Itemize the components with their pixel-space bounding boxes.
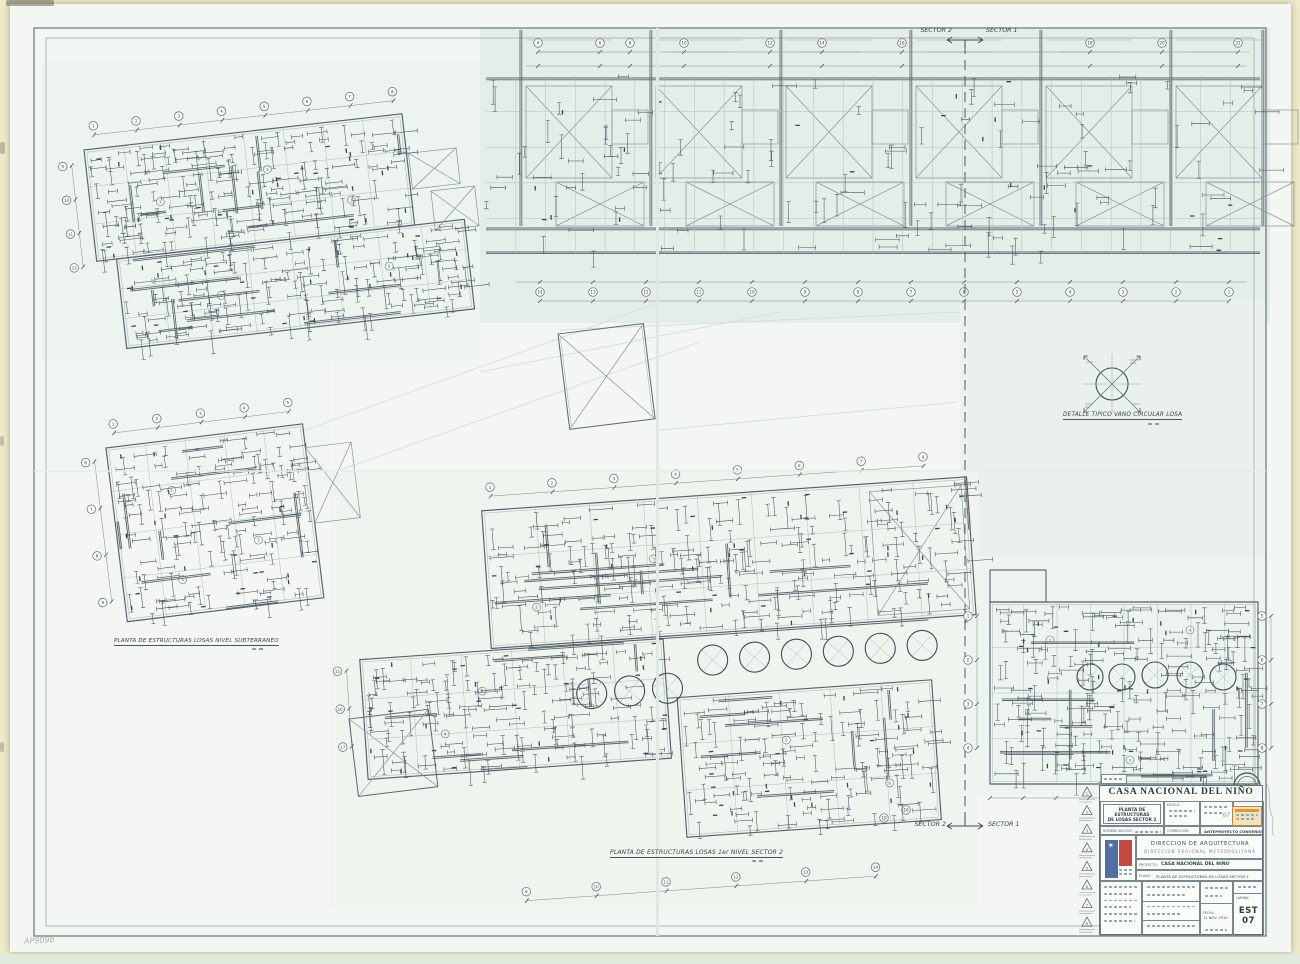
svg-text:4: 4 — [1069, 290, 1072, 295]
svg-text:1: 1 — [159, 199, 163, 204]
date-value: 11 NOV. 2010 — [1203, 916, 1228, 920]
svg-text:1: 1 — [1086, 792, 1088, 796]
svg-text:10: 10 — [749, 290, 755, 295]
pencil-mark: 67 — [1222, 812, 1230, 819]
svg-text:2: 2 — [967, 658, 970, 663]
caption-scale-note — [752, 860, 766, 862]
plan-primer-nivel: 1234567891011121314151617321564 — [321, 448, 1014, 915]
scale-cell: ESCALA — [1164, 801, 1200, 826]
agency-cell: DIRECCION DE ARQUITECTURA DIRECCION REGI… — [1136, 835, 1264, 859]
stair-block-center — [558, 324, 655, 430]
sector-label-top-right: SECTOR 1 — [986, 27, 1018, 34]
svg-text:10: 10 — [593, 884, 599, 889]
svg-text:12: 12 — [643, 290, 649, 295]
svg-text:7: 7 — [1261, 702, 1264, 707]
svg-text:8: 8 — [857, 290, 860, 295]
svg-text:11: 11 — [663, 879, 669, 884]
svg-text:4: 4 — [1189, 627, 1192, 632]
svg-text:20: 20 — [1159, 41, 1165, 46]
svg-text:6: 6 — [1086, 885, 1088, 889]
svg-text:17: 17 — [340, 744, 346, 749]
sheet-number: EST 07 — [1234, 906, 1263, 926]
correction-cell: CORRECCION — [1164, 826, 1200, 835]
sheet-label: LAMINA: — [1236, 896, 1249, 900]
svg-text:3: 3 — [257, 537, 261, 542]
agency-name: DIRECCION DE ARQUITECTURA — [1137, 841, 1263, 847]
svg-text:13: 13 — [803, 869, 809, 874]
svg-text:5: 5 — [1261, 614, 1264, 619]
svg-text:6: 6 — [599, 41, 602, 46]
svg-text:1: 1 — [1228, 290, 1231, 295]
svg-text:5: 5 — [1016, 290, 1019, 295]
svg-text:4: 4 — [1086, 848, 1088, 852]
svg-text:8: 8 — [629, 41, 632, 46]
plan-subterraneo: 123456789234 — [77, 391, 372, 638]
edge-smudge — [6, 0, 54, 6]
sector-label-bottom-left: SECTOR 2 — [902, 821, 946, 828]
sector-label-bottom-right: SECTOR 1 — [988, 821, 1020, 828]
svg-text:3: 3 — [1129, 757, 1132, 762]
svg-text:22: 22 — [1235, 41, 1241, 46]
svg-text:4: 4 — [537, 41, 540, 46]
scale-label: ESCALA — [1167, 803, 1179, 807]
svg-text:15: 15 — [335, 669, 341, 674]
plan-label: PLANO: — [1139, 874, 1151, 878]
project-row: PROYECTO: CASA NACIONAL DEL NIÑO — [1136, 859, 1264, 870]
svg-text:11: 11 — [696, 290, 702, 295]
caption-detalle-vano: DETALLE TIPICO VANO CIRCULAR LOSA — [1063, 412, 1182, 420]
project-value: CASA NACIONAL DEL NIÑO — [1161, 862, 1229, 867]
plan-top-left: 12345678910111212345 — [54, 79, 494, 372]
svg-text:8: 8 — [1261, 746, 1264, 751]
svg-text:6: 6 — [1261, 658, 1264, 663]
sheet-number-cell: LAMINA: EST 07 — [1233, 881, 1264, 936]
logo-cell: ✶ — [1100, 835, 1136, 881]
logo-star-icon: ✶ — [1108, 841, 1115, 850]
revision-triangle-column: 12345678 — [1079, 787, 1095, 932]
fields-colB — [1142, 881, 1200, 936]
svg-text:3: 3 — [967, 702, 970, 707]
svg-text:10: 10 — [881, 816, 887, 821]
detail-vano-circular — [1082, 354, 1142, 414]
edge-smudge — [0, 436, 4, 446]
misc-cell: 67 — [1200, 801, 1233, 826]
file-label: NOMBRE ARCHIVO — [1103, 829, 1133, 833]
plan-bottom-right: 12345678143 — [964, 570, 1273, 800]
pencil-squiggle — [1266, 782, 1274, 836]
svg-text:14: 14 — [537, 290, 543, 295]
plan-value: PLANTA DE ESTRUCTURAS DE LOSAS SECTOR 2 — [1156, 874, 1249, 879]
svg-text:7: 7 — [910, 290, 913, 295]
svg-text:3: 3 — [652, 556, 655, 561]
logo-red-field — [1119, 840, 1132, 866]
svg-text:1: 1 — [967, 614, 970, 619]
svg-text:9: 9 — [804, 290, 807, 295]
mop-logo: ✶ — [1105, 840, 1132, 878]
svg-text:14: 14 — [873, 864, 879, 869]
ghost-underlay — [300, 302, 960, 470]
svg-text:3: 3 — [1086, 829, 1088, 833]
fields-colA — [1100, 881, 1142, 936]
svg-text:8: 8 — [1086, 922, 1088, 926]
approval-stamp-orange — [1232, 806, 1262, 826]
stage-cell: ANTEPROYECTO CONVENIO — [1200, 826, 1264, 835]
svg-text:2: 2 — [1175, 290, 1178, 295]
subject-line1: PLANTA DE ESTRUCTURAS — [1104, 808, 1160, 818]
pencil-edge-note: AP909b — [24, 935, 55, 946]
caption-scale-note — [252, 648, 266, 650]
svg-text:4: 4 — [967, 746, 970, 751]
plan-strip-top-right: 468101214161820221413121110987654321 — [484, 30, 1298, 303]
titleblock-tab — [1101, 774, 1127, 784]
svg-text:5: 5 — [785, 737, 788, 742]
project-label: PROYECTO: — [1139, 863, 1158, 867]
titleblock-header: CASA NACIONAL DEL NIÑO — [1100, 787, 1262, 797]
svg-text:16: 16 — [337, 706, 343, 711]
file-cell: NOMBRE ARCHIVO — [1100, 826, 1164, 835]
blueprint-sheet: 4681012141618202214131211109876543211610… — [0, 0, 1300, 964]
stage-value: ANTEPROYECTO CONVENIO — [1204, 829, 1262, 834]
svg-text:16: 16 — [903, 808, 909, 813]
date-label: FECHA: — [1203, 911, 1215, 915]
svg-text:3: 3 — [1122, 290, 1125, 295]
agency-sub: DIRECCION REGIONAL METROPOLITANA — [1137, 849, 1263, 854]
svg-text:6: 6 — [888, 780, 891, 785]
plan-row: PLANO: PLANTA DE ESTRUCTURAS DE LOSAS SE… — [1136, 870, 1264, 881]
svg-text:5: 5 — [388, 263, 392, 268]
svg-text:2: 2 — [535, 604, 538, 609]
svg-text:4: 4 — [220, 293, 224, 298]
svg-text:2: 2 — [170, 488, 174, 493]
edge-smudge — [0, 142, 5, 154]
subject-cell: PLANTA DE ESTRUCTURAS DE LOSAS SECTOR 2 — [1100, 801, 1164, 826]
svg-text:14: 14 — [819, 41, 825, 46]
svg-text:12: 12 — [733, 874, 739, 879]
caption-scale-note — [1148, 423, 1160, 425]
caption-plan-primer-nivel: PLANTA DE ESTRUCTURAS LOSAS 1er NIVEL SE… — [610, 849, 783, 858]
svg-text:2: 2 — [266, 167, 270, 172]
svg-text:12: 12 — [767, 41, 773, 46]
sector-label-top-left: SECTOR 2 — [908, 27, 952, 34]
svg-text:2: 2 — [1086, 811, 1088, 815]
svg-text:5: 5 — [1086, 866, 1088, 870]
caption-plan-subterraneo: PLANTA DE ESTRUCTURAS LOSAS NIVEL SUBTER… — [114, 638, 279, 646]
svg-text:7: 7 — [1086, 904, 1088, 908]
svg-text:13: 13 — [590, 290, 596, 295]
correction-label: CORRECCION — [1167, 829, 1188, 833]
edge-smudge — [0, 742, 4, 752]
subject-line2: DE LOSAS SECTOR 2 — [1104, 818, 1160, 823]
svg-text:18: 18 — [1087, 41, 1093, 46]
fields-colC: FECHA: 11 NOV. 2010 — [1200, 881, 1233, 936]
svg-text:16: 16 — [899, 41, 905, 46]
svg-text:10: 10 — [681, 41, 687, 46]
